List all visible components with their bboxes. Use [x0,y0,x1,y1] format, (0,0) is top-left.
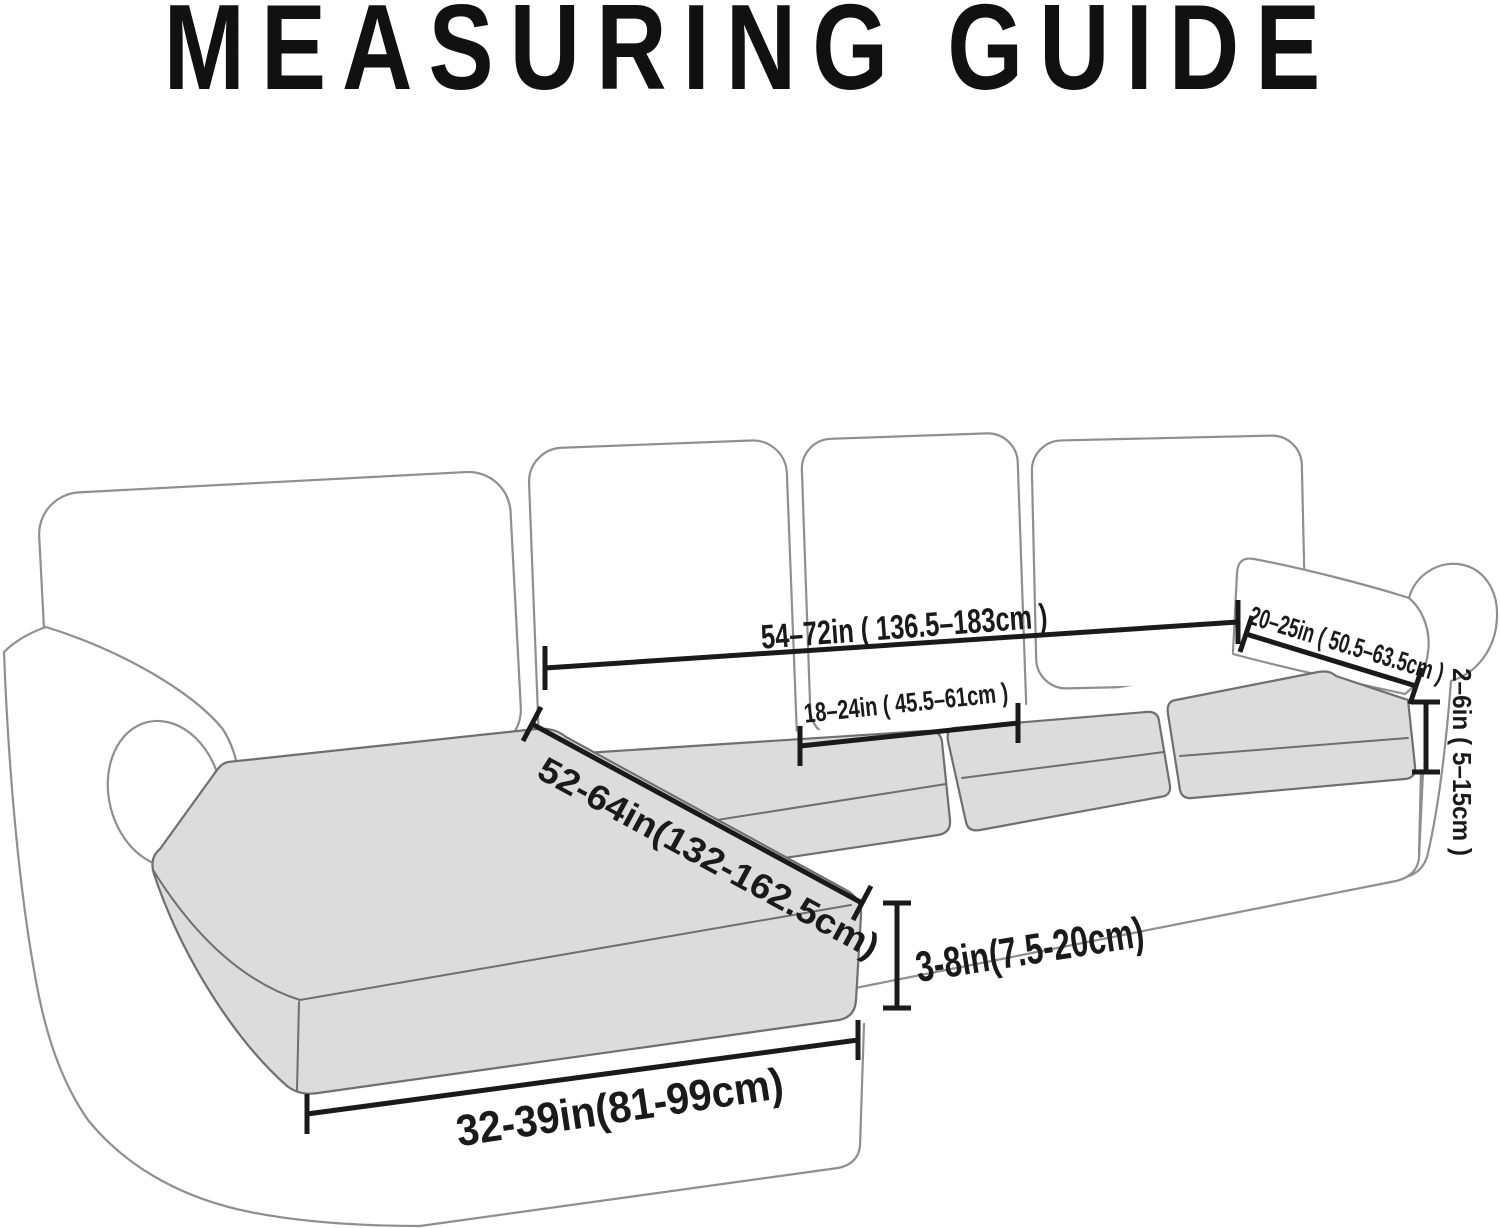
measure-arm-side-height-label: 2–6in ( 5–15cm ) [1447,668,1477,856]
page: MEASURING GUIDE [0,0,1500,1228]
back-cushion-2 [528,439,798,779]
sofa-measuring-diagram: 54–72in ( 136.5–183cm ) 18–24in ( 45.5–6… [0,0,1500,1228]
